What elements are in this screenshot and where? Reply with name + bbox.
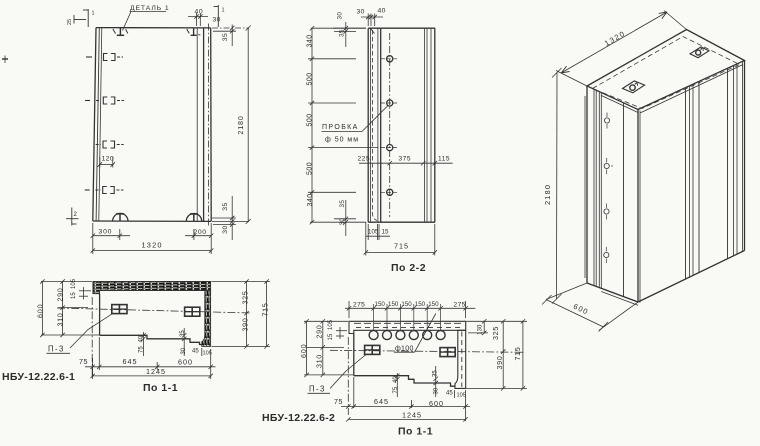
svg-text:500: 500 xyxy=(307,72,314,85)
svg-text:П-3: П-3 xyxy=(309,385,326,394)
svg-text:600: 600 xyxy=(178,358,193,367)
svg-text:340: 340 xyxy=(307,34,314,47)
svg-text:275: 275 xyxy=(454,302,466,309)
svg-text:715: 715 xyxy=(394,242,409,251)
svg-text:225: 225 xyxy=(358,156,371,163)
svg-text:35: 35 xyxy=(339,200,346,208)
svg-text:390: 390 xyxy=(241,318,250,332)
svg-text:1: 1 xyxy=(222,8,225,14)
svg-text:645: 645 xyxy=(123,357,138,366)
svg-text:325: 325 xyxy=(491,326,500,340)
svg-text:1245: 1245 xyxy=(402,411,422,420)
svg-text:30: 30 xyxy=(337,12,344,20)
svg-text:75: 75 xyxy=(139,346,145,353)
svg-text:275: 275 xyxy=(353,302,365,309)
svg-text:150: 150 xyxy=(415,301,426,308)
svg-text:500: 500 xyxy=(307,113,314,126)
svg-text:130: 130 xyxy=(477,324,484,335)
svg-text:150: 150 xyxy=(375,301,386,308)
svg-text:15: 15 xyxy=(328,333,334,340)
svg-text:2180: 2180 xyxy=(236,115,245,134)
svg-text:290: 290 xyxy=(56,288,65,302)
svg-text:105: 105 xyxy=(71,278,77,289)
svg-text:ДЕТАЛЬ 1: ДЕТАЛЬ 1 xyxy=(130,5,170,12)
svg-text:310: 310 xyxy=(315,354,324,368)
svg-text:35: 35 xyxy=(339,29,346,37)
svg-text:НБУ-12.22.6-2: НБУ-12.22.6-2 xyxy=(262,412,335,424)
svg-text:115: 115 xyxy=(438,156,450,163)
svg-text:40: 40 xyxy=(378,8,386,15)
svg-text:290: 290 xyxy=(315,325,324,339)
svg-text:35: 35 xyxy=(180,330,186,337)
svg-text:300: 300 xyxy=(99,229,113,236)
svg-text:ф100: ф100 xyxy=(395,346,414,353)
svg-text:35: 35 xyxy=(433,370,439,377)
svg-text:310: 310 xyxy=(56,313,65,327)
svg-text:40: 40 xyxy=(139,335,145,342)
svg-text:150: 150 xyxy=(388,301,399,308)
svg-text:15: 15 xyxy=(71,292,77,299)
svg-text:ф 50 мм: ф 50 мм xyxy=(325,137,359,144)
svg-text:П-3: П-3 xyxy=(48,345,65,354)
svg-text:500: 500 xyxy=(307,162,314,175)
svg-text:150: 150 xyxy=(428,301,439,308)
svg-text:1245: 1245 xyxy=(146,367,166,376)
svg-text:30: 30 xyxy=(357,9,365,16)
svg-text:2180: 2180 xyxy=(543,184,552,205)
svg-text:По 1-1: По 1-1 xyxy=(143,382,178,394)
svg-text:40: 40 xyxy=(393,376,399,383)
svg-text:25: 25 xyxy=(67,19,73,25)
svg-text:600: 600 xyxy=(299,344,308,358)
svg-text:600: 600 xyxy=(36,304,45,318)
svg-text:15: 15 xyxy=(382,229,389,236)
svg-text:1320: 1320 xyxy=(142,241,163,250)
svg-text:715: 715 xyxy=(261,303,270,317)
svg-text:ПРОБКА: ПРОБКА xyxy=(322,124,359,131)
svg-text:340: 340 xyxy=(307,193,314,206)
svg-text:200: 200 xyxy=(194,229,207,236)
svg-text:40: 40 xyxy=(195,9,204,16)
svg-text:600: 600 xyxy=(429,399,444,408)
svg-text:35: 35 xyxy=(222,33,229,41)
svg-text:По 2-2: По 2-2 xyxy=(391,262,426,274)
svg-text:325: 325 xyxy=(241,291,250,305)
svg-text:120: 120 xyxy=(102,156,115,163)
svg-text:45: 45 xyxy=(192,349,199,355)
svg-text:НБУ-12.22.6-1: НБУ-12.22.6-1 xyxy=(2,371,75,383)
svg-text:150: 150 xyxy=(401,301,412,308)
svg-text:105: 105 xyxy=(368,229,379,236)
svg-text:По 1-1: По 1-1 xyxy=(398,426,433,438)
svg-text:75: 75 xyxy=(79,357,88,366)
svg-text:30: 30 xyxy=(213,17,221,24)
svg-text:1: 1 xyxy=(92,11,95,17)
svg-text:375: 375 xyxy=(399,156,412,163)
svg-text:30: 30 xyxy=(339,218,346,226)
svg-text:30: 30 xyxy=(434,387,440,394)
svg-text:645: 645 xyxy=(374,397,389,406)
svg-text:45: 45 xyxy=(446,391,453,397)
svg-text:105: 105 xyxy=(328,319,334,330)
svg-text:390: 390 xyxy=(495,356,504,370)
svg-text:75: 75 xyxy=(393,386,399,393)
svg-text:30: 30 xyxy=(222,225,229,233)
svg-text:715: 715 xyxy=(513,347,522,361)
svg-text:35: 35 xyxy=(222,202,229,210)
svg-text:30: 30 xyxy=(181,347,187,354)
svg-text:75: 75 xyxy=(334,397,343,406)
svg-text:105: 105 xyxy=(457,393,466,399)
